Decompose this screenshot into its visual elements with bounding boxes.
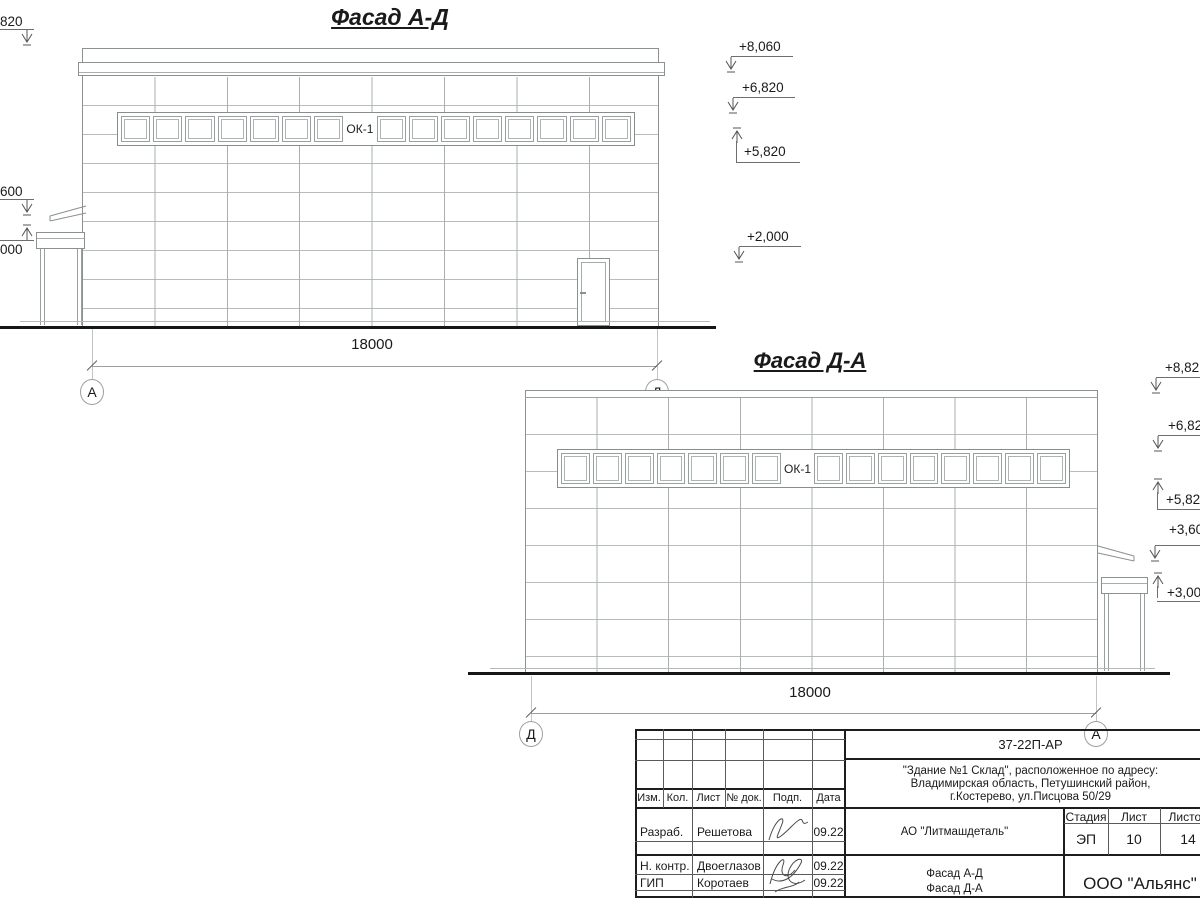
stage-value: ЭП [1064,831,1108,847]
elevation-mark: +5,820 [744,144,786,159]
facade-ad-door [577,258,610,326]
elevation-mark: +3,60 [1169,522,1200,537]
window-pane-glass [188,119,211,139]
window-pane [185,116,214,142]
col-podp: Подп. [763,792,812,804]
titleblock-divider [635,788,845,790]
elevation-mark: 600 [0,184,23,199]
window-pane-glass [221,119,244,139]
window-pane [973,453,1002,484]
window-pane-glass [691,456,714,481]
design-org: ООО "Альянс" [1064,874,1200,894]
project-address: "Здание №1 Склад", расположенное по адре… [845,765,1200,804]
window-pane-glass [817,456,840,481]
elevation-shelf [733,97,795,98]
drawing-canvas: Фасад А-Д ОК-1 18000 А Д 820 600 [0,0,1200,900]
window-pane-glass [628,456,651,481]
window-pane-glass [605,119,628,139]
elevation-arrow-down-icon [1150,378,1162,394]
window-pane-glass [540,119,563,139]
window-pane-glass [660,456,683,481]
row-role: ГИП [640,876,664,890]
facade-da-dim-line [531,713,1096,714]
facade-da-ground-line [468,672,1170,675]
titleblock-line [635,890,845,891]
client-company: АО "Литмашдеталь" [845,826,1064,838]
axis-leader [657,329,658,379]
titleblock-border [635,729,1200,731]
window-pane-glass [476,119,499,139]
row-date: 09.22 [812,825,845,839]
window-pane-glass [723,456,746,481]
window-pane-glass [1040,456,1063,481]
parapet-line [79,72,664,73]
facade-da-wall [525,390,1098,673]
elevation-arrow-down-icon [21,200,33,216]
axis-leader [1096,676,1097,721]
window-pane [657,453,686,484]
porch-leg [44,249,45,325]
elevation-arrow-up-icon [731,127,743,143]
elevation-shelf [1157,509,1200,510]
facade-ad-canopy [46,202,88,226]
window-pane-glass [508,119,531,139]
elevation-mark: 000 [0,242,23,257]
porch-leg [1140,594,1141,671]
elevation-shelf [1158,435,1200,436]
window-pane [121,116,150,142]
window-pane-glass [317,119,340,139]
row-name: Решетова [697,825,752,839]
elevation-mark: +6,820 [742,80,784,95]
elevation-mark: +5,82 [1166,492,1200,507]
window-pane-glass [124,119,147,139]
sheets-label: Листов [1160,810,1200,824]
facade-ad-dim-line [92,366,657,367]
window-pane-glass [412,119,435,139]
sheets-value: 14 [1160,831,1200,847]
elevation-mark: +3,00 [1167,585,1200,600]
window-pane-glass [881,456,904,481]
titleblock-line [635,841,845,842]
window-pane-glass [913,456,936,481]
elevation-mark: +6,82 [1168,418,1200,433]
facade-da-title: Фасад Д-А [710,348,910,374]
window-pane-glass [380,119,403,139]
window-pane-glass [755,456,778,481]
facade-ad-window-band: ОК-1 [117,112,635,146]
col-kol: Кол. [663,792,692,804]
elevation-stem [1157,586,1158,598]
titleblock-line [635,739,845,740]
window-pane [537,116,566,142]
facade-ad-plinth-line [20,321,710,322]
window-pane [282,116,311,142]
window-pane [846,453,875,484]
axis-bubble-a: А [80,379,104,405]
sheet-title-2: Фасад Д-А [845,883,1064,895]
window-pane-glass [596,456,619,481]
window-pane [570,116,599,142]
address-line-1: "Здание №1 Склад", расположенное по адре… [845,765,1200,778]
facade-ad-porch-beam [36,232,85,249]
axis-bubble-d: Д [519,721,543,747]
row-name: Двоеглазов [697,859,761,873]
elevation-stem [736,141,737,162]
window-pane [1037,453,1066,484]
elevation-shelf [1155,545,1200,546]
porch-beam-line [1102,583,1147,584]
elevation-shelf [731,56,793,57]
window-pane [314,116,343,142]
window-pane-glass [444,119,467,139]
window-pane [441,116,470,142]
window-pane [720,453,749,484]
window-pane [814,453,843,484]
row-date: 09.22 [812,876,845,890]
window-pane [688,453,717,484]
window-pane [910,453,939,484]
sheet-title-1: Фасад А-Д [845,868,1064,880]
window-pane [1005,453,1034,484]
titleblock-line [635,760,845,761]
axis-leader [92,329,93,379]
col-ndok: № док. [725,792,763,804]
window-pane-glass [944,456,967,481]
elevation-stem [1157,492,1158,509]
window-pane-glass [253,119,276,139]
facade-da-plinth-line [490,668,1155,669]
sheet-label: Лист [1108,810,1160,824]
window-pane [250,116,279,142]
elevation-arrow-up-icon [21,224,33,240]
facade-ad-dimension: 18000 [337,336,407,353]
address-line-3: г.Костерево, ул.Писцова 50/29 [845,791,1200,804]
titleblock-border [635,896,1200,898]
elevation-shelf [736,162,800,163]
elevation-mark: +8,82 [1165,360,1199,375]
elevation-mark: 820 [0,14,23,29]
facade-da-window-band: ОК-1 [557,449,1070,488]
elevation-arrow-down-icon [1152,436,1164,452]
window-pane [752,453,781,484]
window-type-label: ОК-1 [346,116,373,142]
window-type-label: ОК-1 [784,453,811,484]
window-pane [625,453,654,484]
stage-label: Стадия [1064,810,1108,824]
signature [765,810,811,846]
col-izm: Изм. [635,792,663,804]
window-pane [505,116,534,142]
sheet-value: 10 [1108,831,1160,847]
elevation-mark: +2,000 [747,229,789,244]
window-pane-glass [156,119,179,139]
window-pane-glass [1008,456,1031,481]
window-pane [878,453,907,484]
facade-da-dimension: 18000 [775,684,845,701]
axis-leader [531,676,532,721]
window-pane-glass [564,456,587,481]
porch-leg [1144,594,1145,671]
window-pane-glass [285,119,308,139]
titleblock-border [635,729,637,898]
window-pane-glass [573,119,596,139]
porch-leg [1104,594,1105,671]
facade-da-parapet-line [525,397,1098,398]
row-name: Коротаев [697,876,749,890]
titleblock-divider [846,758,1200,760]
row-role: Разраб. [640,825,683,839]
window-pane [561,453,590,484]
window-pane-glass [849,456,872,481]
porch-leg [77,249,78,325]
elevation-arrow-up-icon [1152,572,1164,588]
porch-leg [40,249,41,325]
facade-da-canopy [1096,542,1138,566]
porch-leg [1108,594,1109,671]
facade-ad-wall [82,48,659,327]
address-line-2: Владимирская область, Петушинский район, [845,778,1200,791]
row-role: Н. контр. [640,859,690,873]
window-pane [409,116,438,142]
col-list: Лист [692,792,725,804]
window-pane [941,453,970,484]
window-pane [473,116,502,142]
facade-ad-ground-line [0,326,716,329]
window-pane-glass [976,456,999,481]
elevation-shelf [1156,377,1200,378]
titleblock-line [692,729,693,898]
window-pane [153,116,182,142]
window-pane [593,453,622,484]
facade-da-porch-beam [1101,577,1148,594]
elevation-arrow-down-icon [725,57,737,73]
elevation-arrow-down-icon [21,30,33,46]
doc-number: 37-22П-АР [845,737,1200,752]
titleblock-divider [635,854,1200,856]
titleblock-line [635,874,845,875]
window-pane [218,116,247,142]
col-data: Дата [812,792,845,804]
elevation-arrow-down-icon [727,98,739,114]
elevation-arrow-down-icon [733,247,745,263]
elevation-mark: +8,060 [739,39,781,54]
porch-leg [81,249,82,325]
door-handle-icon [580,292,586,294]
elevation-arrow-up-icon [1152,478,1164,494]
elevation-shelf [1157,601,1200,602]
row-date: 09.22 [812,859,845,873]
window-pane [602,116,631,142]
facade-ad-title: Фасад А-Д [290,4,490,31]
porch-beam-line [37,238,84,239]
facade-da-panel-grid [526,398,1097,672]
window-pane [377,116,406,142]
elevation-shelf [0,240,34,241]
titleblock-divider [635,807,1200,809]
signature [763,848,811,896]
elevation-shelf [739,246,801,247]
elevation-arrow-down-icon [1149,546,1161,562]
facade-ad-parapet [78,62,665,76]
